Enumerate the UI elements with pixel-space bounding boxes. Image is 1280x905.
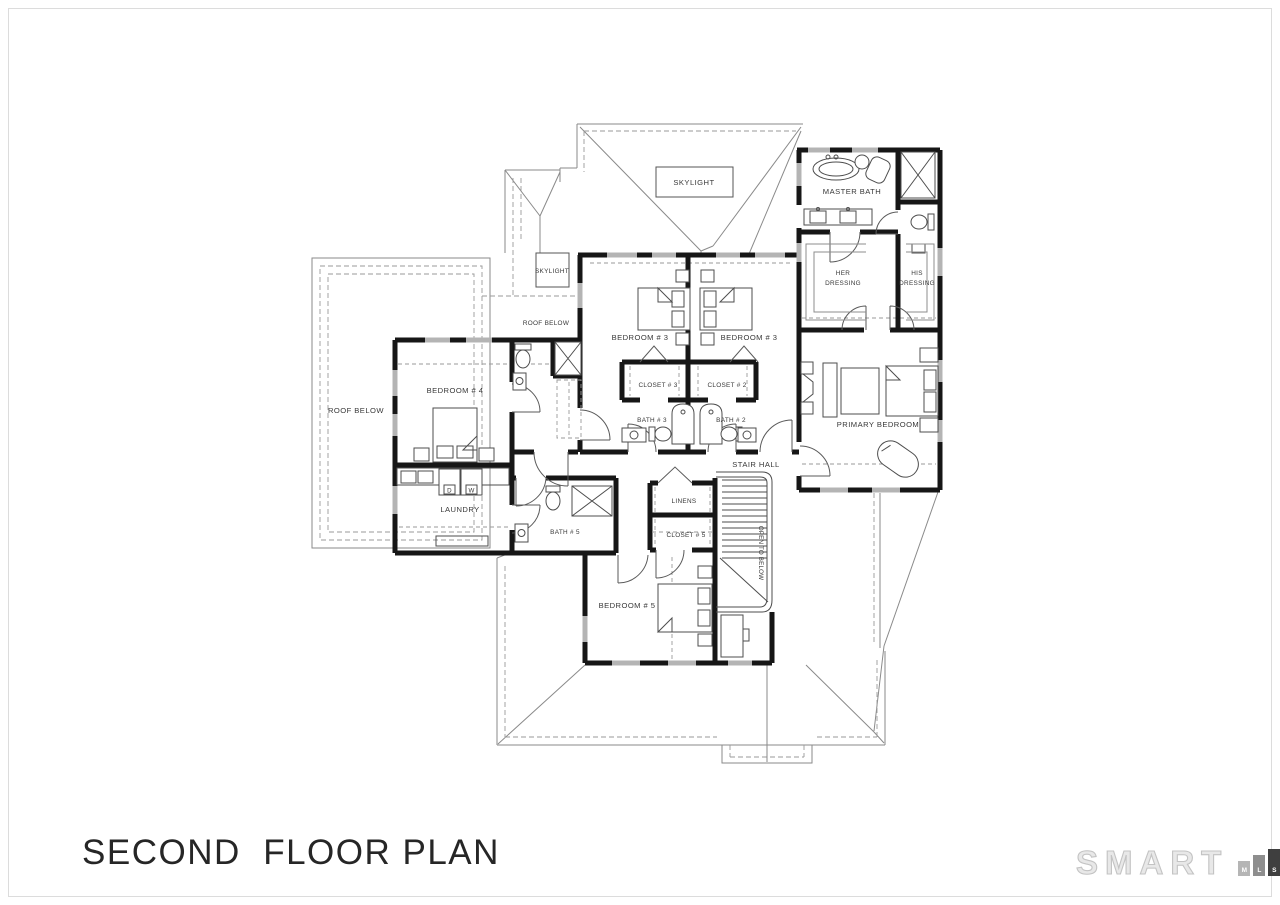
label-washer: W — [468, 488, 474, 495]
mls-bar-m: M — [1238, 861, 1250, 876]
label-dryer: D — [447, 488, 452, 495]
label-open-to-below: OPEN TO BELOW — [757, 526, 764, 580]
label-linens: LINENS — [672, 498, 697, 505]
label-her-dressing: HERDRESSING — [825, 270, 861, 287]
label-bedroom3-left: BEDROOM # 3 — [612, 333, 669, 342]
label-closet2: CLOSET # 2 — [707, 382, 746, 389]
furniture-layer — [397, 152, 938, 657]
mls-bar-l: L — [1253, 855, 1265, 876]
label-closet5: CLOSET # 5 — [666, 532, 705, 539]
label-his-dressing: HISDRESSING — [899, 270, 935, 287]
label-master-bath: MASTER BATH — [823, 187, 881, 196]
desk — [721, 615, 749, 657]
label-bath3: BATH # 3 — [637, 417, 667, 424]
bed-bedroom5 — [658, 566, 712, 646]
label-roof-below-upper: ROOF BELOW — [523, 320, 570, 327]
mls-bars: M L S — [1238, 849, 1280, 879]
label-laundry: LAUNDRY — [440, 505, 479, 514]
label-skylight-top: SKYLIGHT — [673, 178, 714, 187]
label-bedroom3-right: BEDROOM # 3 — [721, 333, 778, 342]
water-closet-fixtures — [911, 214, 934, 253]
smartmls-logo: SMART M L S — [1076, 846, 1280, 879]
label-bedroom5: BEDROOM # 5 — [599, 601, 656, 610]
label-bedroom4: BEDROOM # 4 — [427, 386, 484, 395]
floor-plan-page: SKYLIGHT SKYLIGHT ROOF BELOW ROOF BELOW … — [0, 0, 1280, 905]
mls-bar-s: S — [1268, 849, 1280, 876]
bath2-fixtures — [700, 404, 756, 444]
page-title: SECOND FLOOR PLAN — [82, 833, 500, 873]
smart-logo-text: SMART — [1076, 846, 1228, 879]
bath4-fixtures — [513, 342, 581, 438]
label-skylight-small: SKYLIGHT — [535, 268, 569, 275]
label-bath2: BATH # 2 — [716, 417, 746, 424]
label-primary-bedroom: PRIMARY BEDROOM — [837, 420, 919, 429]
label-bath5: BATH # 5 — [550, 529, 580, 536]
label-stair-hall: STAIR HALL — [732, 460, 779, 469]
label-roof-below-left: ROOF BELOW — [328, 406, 384, 415]
label-closet3: CLOSET # 3 — [638, 382, 677, 389]
labels-layer: SKYLIGHT SKYLIGHT ROOF BELOW ROOF BELOW … — [328, 178, 935, 610]
primary-bedroom-furniture — [801, 348, 938, 482]
floor-plan-drawing: SKYLIGHT SKYLIGHT ROOF BELOW ROOF BELOW … — [0, 0, 1280, 905]
